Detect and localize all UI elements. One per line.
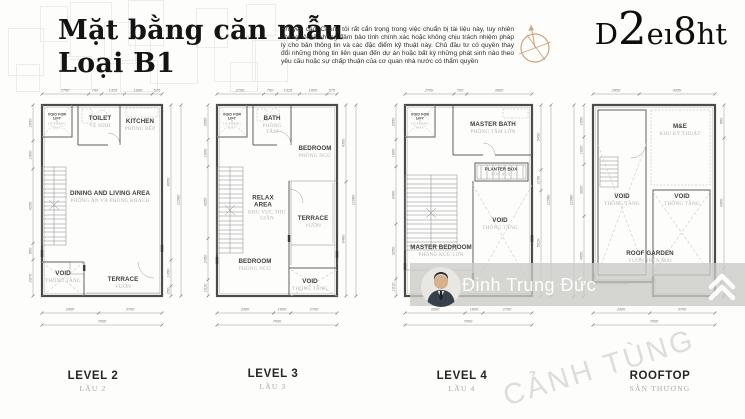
room-label-dining: DINING AND LIVING AREAPHÒNG ĂN VÀ PHÒNG … [70,190,150,204]
dim-value: 575 [154,88,161,93]
dim-value: 250 [166,288,171,295]
dim-value: 760 [267,88,274,93]
room-label-master-bath: MASTER BATHPHÒNG TẮM LỚN [470,121,516,135]
dim-value: 3450 [536,133,541,142]
agent-name: Đinh Trung Đức [462,275,596,296]
dim-value: 950 [719,118,724,125]
room-label-void: VOIDTHÔNG TẦNG [45,270,81,284]
dim-value: 1000 [278,307,287,312]
room-label-terrace: TERRACEVƯỜN [108,276,139,290]
dim-value: 11080 [176,195,181,206]
dim-value: 7000 [98,319,107,324]
dim-value: 700 [457,88,464,93]
room-label-lift: VOID FOR LIFTLÔ THANG MÁY [409,112,431,129]
room-label-void: VOIDTHÔNG TẦNG [292,278,328,292]
dim-value: 8650 [166,178,171,187]
dim-value: 3250 [391,247,396,256]
room-label-bath: BATHPHÒNG TẮM [258,115,286,135]
room-label-void: VOIDTHÔNG TẦNG [482,217,518,231]
dim-value: 3300 [241,307,250,312]
dim-value: 6480 [341,235,346,244]
dim-value: 2050 [391,118,396,127]
dim-value: 4250 [28,202,33,211]
dim-value: 575 [329,88,336,93]
dim-value: 1600 [203,149,208,158]
disclaimer-text: Khuyến cáo: Chúng tôi rất cẩn trọng tron… [281,26,514,66]
diagonal-watermark: CẢNH TÙNG [500,324,700,414]
room-label-planter-box: PLANTER BOXBỒN HOA [485,167,518,178]
floorplan-level2: VOID FOR LIFTLÔ THANG MÁY TOILETVỆ SINH … [22,85,198,335]
dim-value: 1450 [166,269,171,278]
dim-value: 7000 [464,319,473,324]
dim-value: 2700 [310,307,319,312]
dim-value: 4350 [719,199,724,208]
room-label-lift: VOID FOR LIFTLÔ THANG MÁY [46,112,68,129]
room-label-kitchen: KITCHENPHÒNG BẾP [125,118,155,132]
dim-value: 3300 [66,307,75,312]
dim-value: 4250 [203,198,208,207]
dim-value: 2050 [203,118,208,127]
dim-value: 1600 [28,151,33,160]
dim-value: 7000 [650,319,659,324]
room-label-terrace: TERRACEVƯỜN [298,215,329,229]
dim-value: 3700 [678,307,687,312]
dim-value: 11080 [351,195,356,206]
dim-value: 11080 [546,195,551,206]
dim-value: 1600 [134,88,143,93]
dim-value: 3400 [391,191,396,200]
room-label-relax-area: RELAX AREAKHU VỰC THƯ GIÃN [245,195,289,222]
brand-watermark-icon [703,266,741,308]
dim-value: 4350 [673,88,682,93]
dim-value: 1010 [391,283,396,292]
agent-avatar [421,267,461,307]
dim-value: 1100 [536,176,541,184]
dim-value: 2700 [61,88,70,93]
room-label-bedroom-upper: BEDROOMPHÒNG NGỦ [298,145,331,159]
dim-value: 760 [92,88,99,93]
dim-value: 2700 [425,88,434,93]
room-label-bedroom-lower: BEDROOMPHÒNG NGỦ [238,258,271,272]
dim-value: 3000 [579,186,584,195]
room-label-roof-garden: ROOF GARDENVƯỜN TRÊN MÁI [626,250,674,264]
dim-value: 5610 [536,239,541,248]
room-label-void-left: VOIDTHÔNG TẦNG [604,193,640,207]
room-label-master-bedroom: MASTER BEDROOMPHÒNG NGỦ LỚN [410,244,472,258]
floor-label-level2: LEVEL 2LẦU 2 [68,370,119,393]
dim-value: 2070 [28,274,33,283]
room-label-me: M&EKHU KỸ THUẬT [659,123,700,137]
dim-value: 3600 [495,88,504,93]
room-label-lift: VOID FOR LIFTLÔ THANG MÁY [221,112,243,129]
dim-value: 3300 [617,307,626,312]
dim-value: 2050 [28,119,33,128]
dim-value: 950 [28,248,33,255]
dim-value: 2700 [503,307,512,312]
dim-value: 11080 [569,195,574,206]
dim-value: 3300 [431,307,440,312]
floorplan-sheet: Mặt bằng căn mẫuLoại B1 Khuyến cáo: Chún… [0,0,745,419]
dim-value: 2700 [236,88,245,93]
dim-value: 1325 [284,88,293,93]
brand-logo: D2eı8ht [595,10,727,53]
compass-icon [512,20,558,70]
dim-value: 2650 [612,88,621,93]
dim-value: 1600 [579,146,584,155]
room-label-toilet: TOILETVỆ SINH [89,115,112,129]
dim-value: 1000 [470,307,479,312]
dim-value: 1600 [391,149,396,158]
room-label-void-right: VOIDTHÔNG TẦNG [664,193,700,207]
dim-value: 3700 [126,307,135,312]
dim-value: 2450 [203,255,208,264]
dim-value: 1010 [203,284,208,293]
floorplan-level3: VOID FOR LIFTLÔ THANG MÁY BATHPHÒNG TẮM … [197,85,373,335]
dim-value: 1325 [109,88,118,93]
dim-value: 4050 [579,252,584,261]
dim-value: 1850 [579,117,584,126]
floor-label-level3: LEVEL 3LẦU 3 [248,368,299,391]
floor-label-level4: LEVEL 4LẦU 4 [437,370,488,393]
dim-value: 4350 [341,139,346,148]
dim-value: 1600 [309,88,318,93]
dim-value: 7000 [273,319,282,324]
